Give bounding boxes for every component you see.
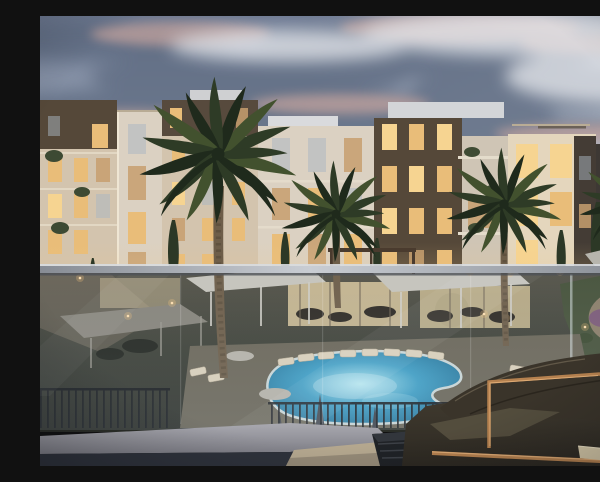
vignette bbox=[40, 16, 600, 466]
architectural-rendering bbox=[40, 16, 600, 466]
